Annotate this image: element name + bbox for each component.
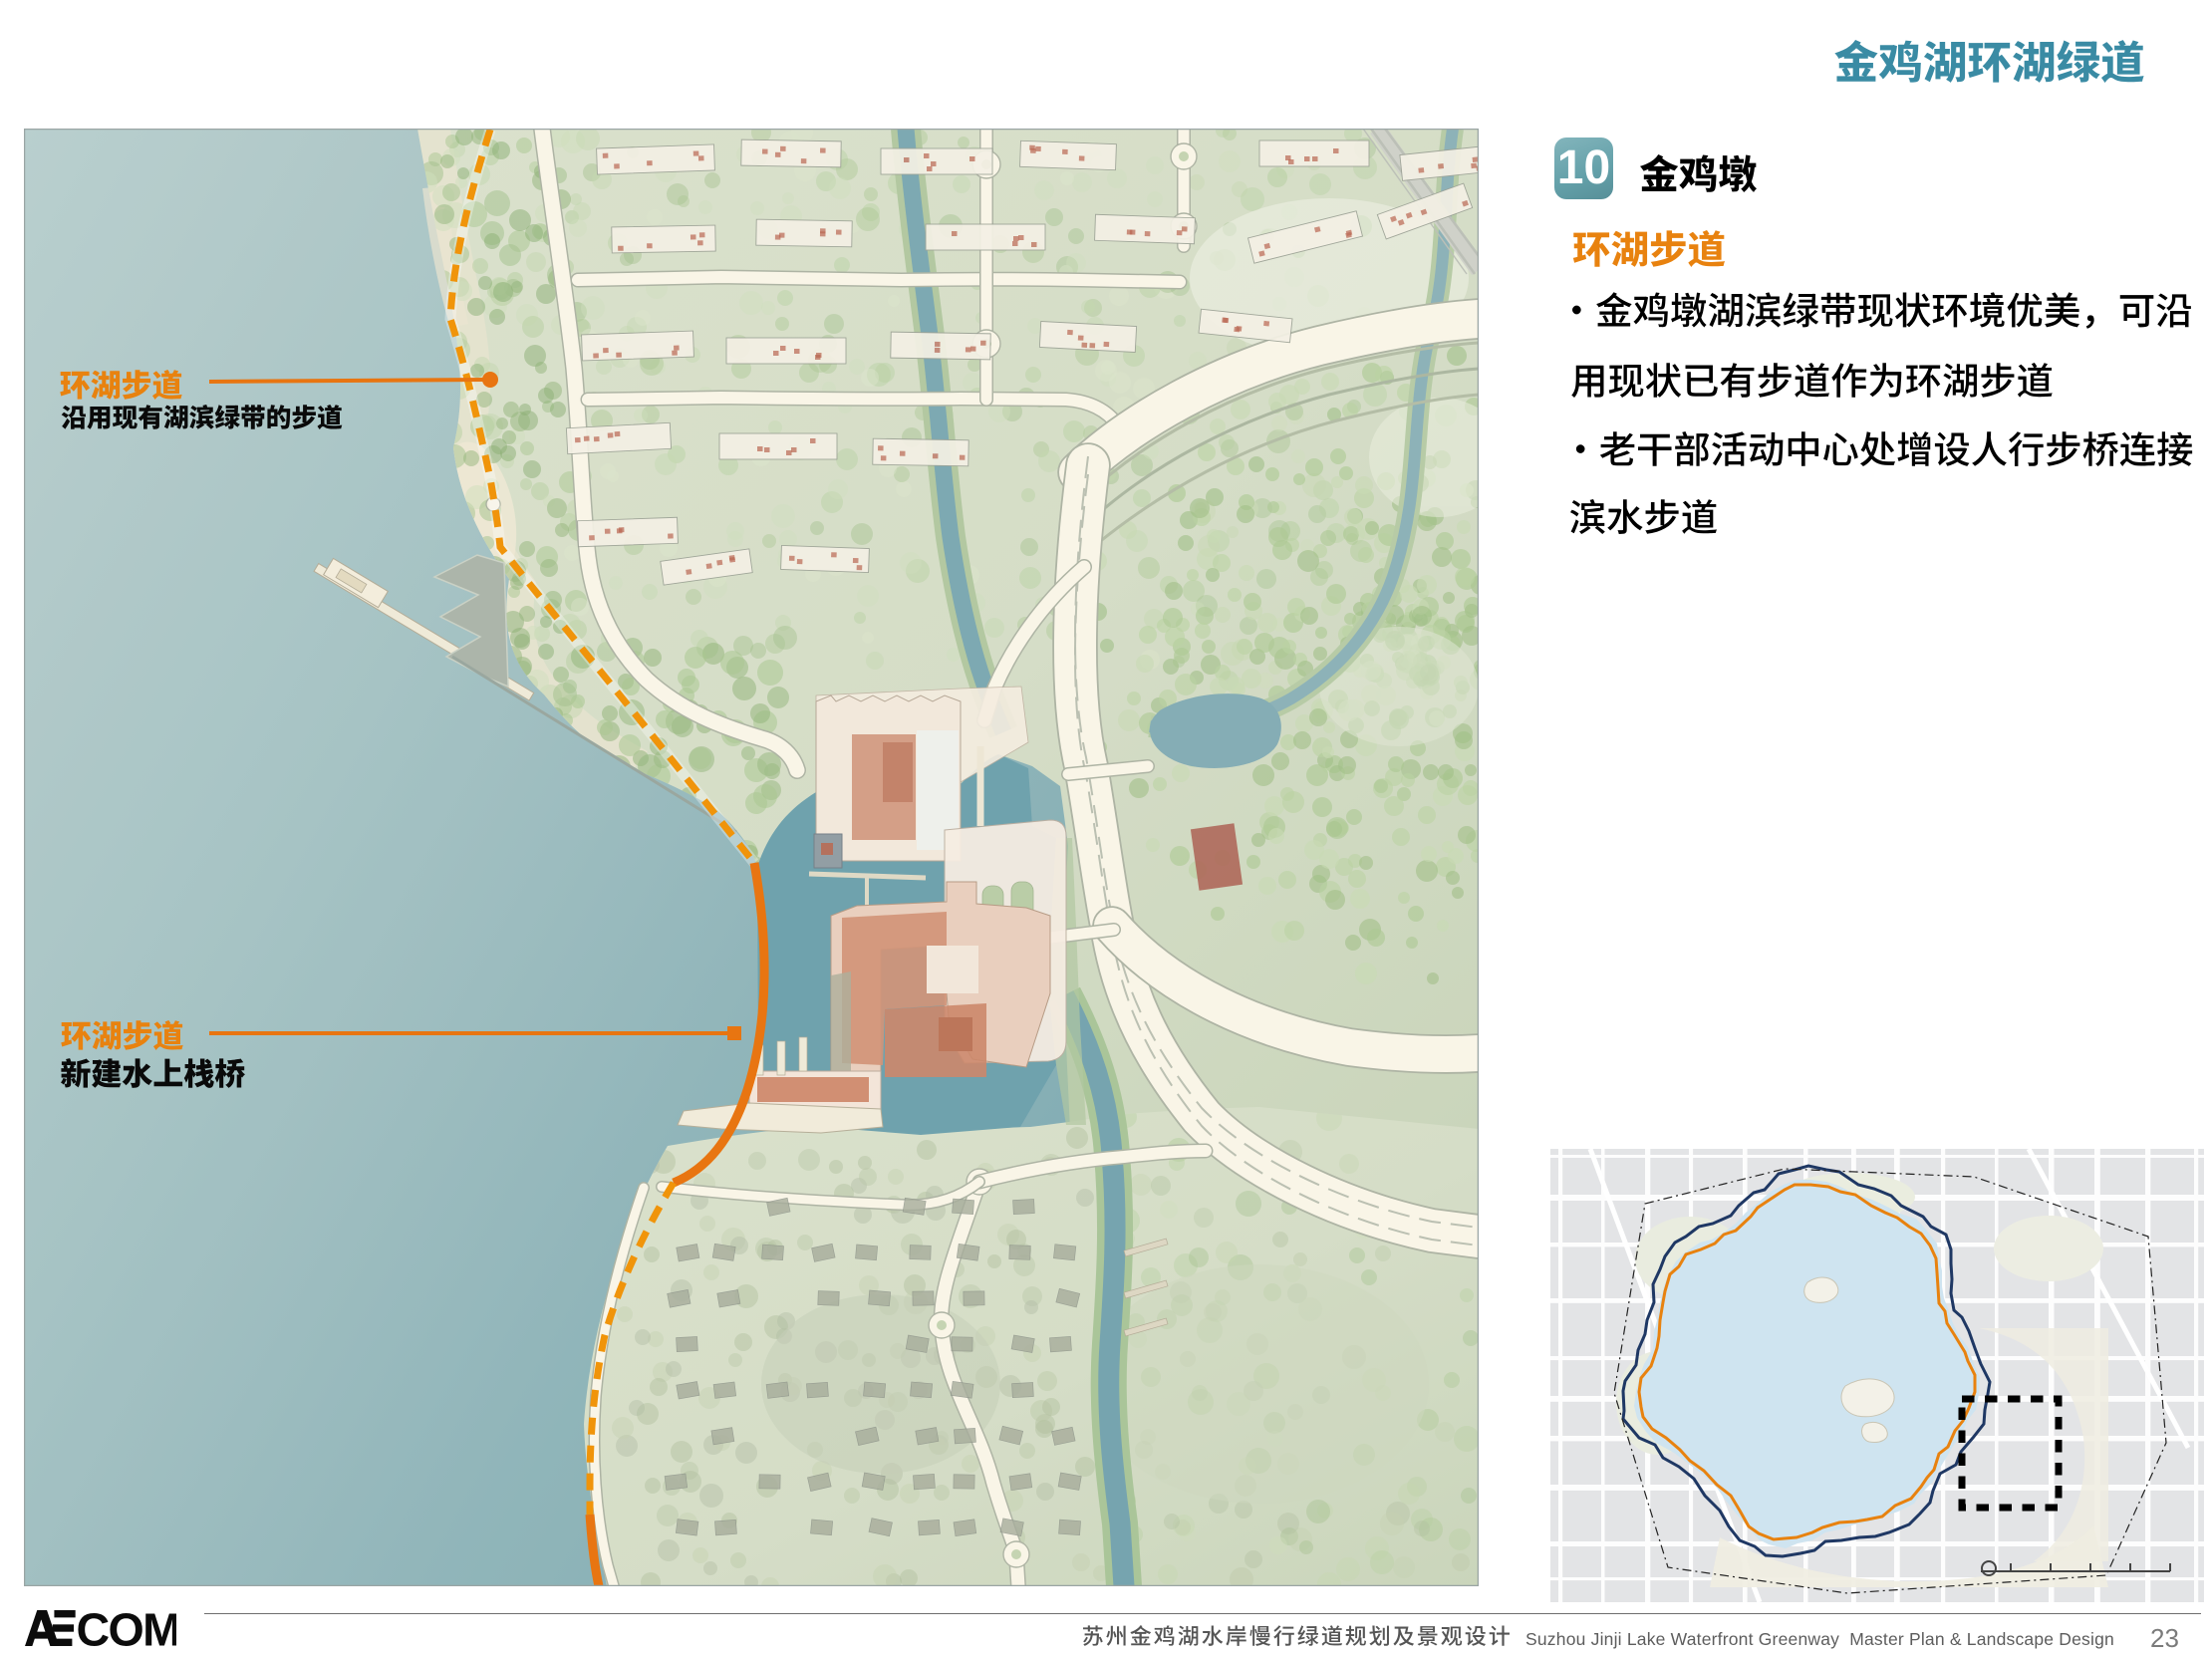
svg-text:COM: COM bbox=[76, 1606, 176, 1650]
